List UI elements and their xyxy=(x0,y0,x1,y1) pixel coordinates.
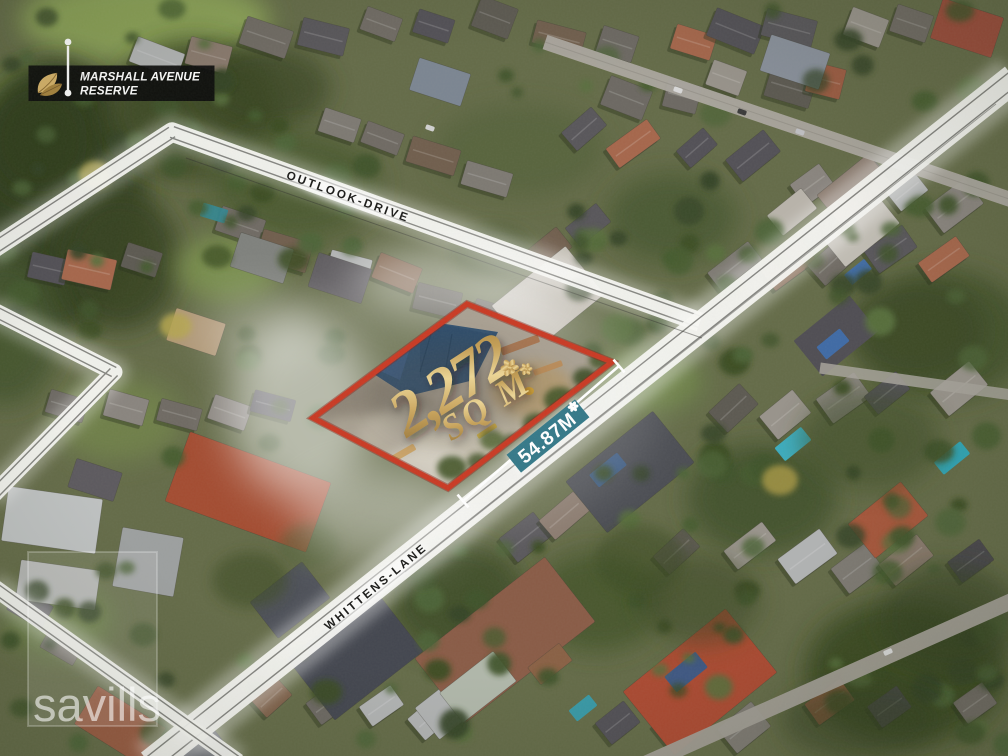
svg-text:savills: savills xyxy=(33,678,161,731)
